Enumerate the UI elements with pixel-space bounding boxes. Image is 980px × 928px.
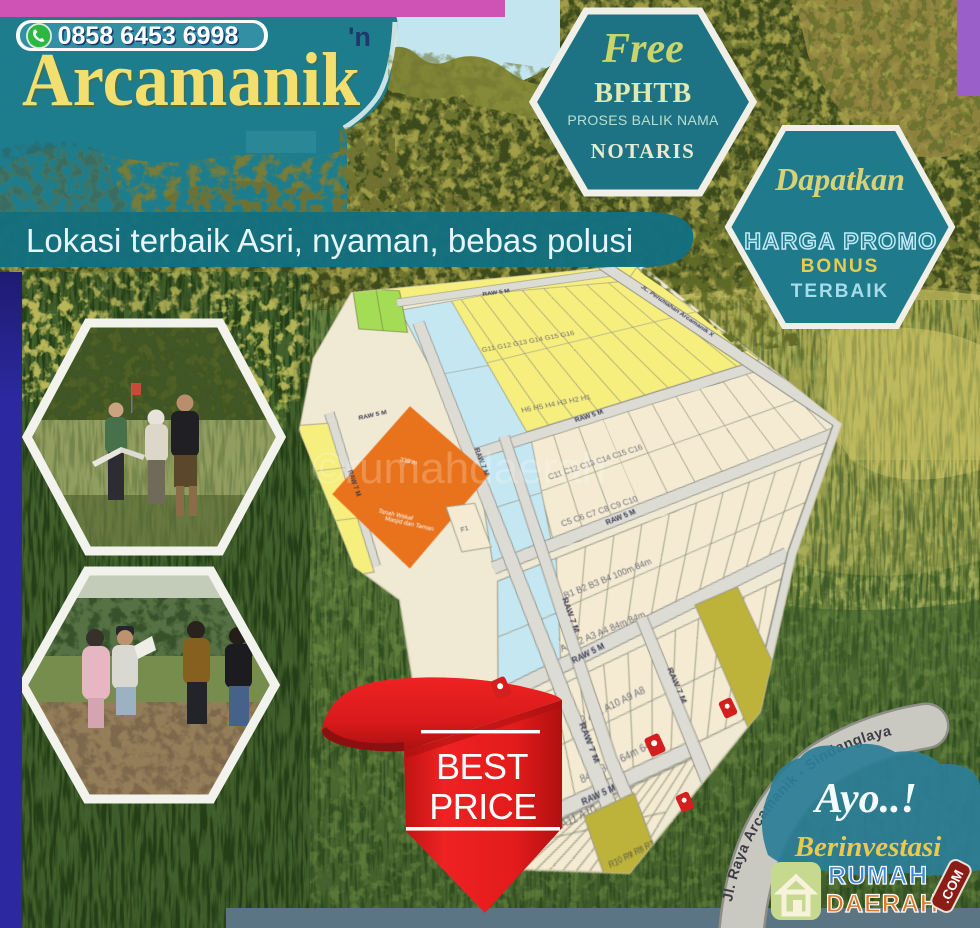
svg-text:BONUS: BONUS xyxy=(801,256,880,277)
svg-text:BPHTB: BPHTB xyxy=(594,78,691,109)
svg-text:Berinvestasi: Berinvestasi xyxy=(794,831,942,863)
svg-text:BEST: BEST xyxy=(436,746,529,787)
svg-text:NOTARIS: NOTARIS xyxy=(591,139,696,163)
svg-text:TERBAIK: TERBAIK xyxy=(791,281,889,302)
svg-text:RUMAH: RUMAH xyxy=(828,862,929,890)
svg-text:PROSES BALIK NAMA: PROSES BALIK NAMA xyxy=(567,112,719,128)
svg-text:©rumahdaerah: ©rumahdaerah xyxy=(312,444,606,493)
svg-text:DAERAH: DAERAH xyxy=(826,890,939,918)
svg-text:HARGA PROMO: HARGA PROMO xyxy=(744,228,937,254)
svg-text:Free: Free xyxy=(601,26,684,72)
svg-text:Arcamanik: Arcamanik xyxy=(22,38,361,122)
svg-text:Lokasi terbaik Asri, nyaman, b: Lokasi terbaik Asri, nyaman, bebas polus… xyxy=(26,222,633,259)
svg-text:Ayo..!: Ayo..! xyxy=(812,776,917,822)
svg-text:Dapatkan: Dapatkan xyxy=(774,161,905,197)
svg-text:PRICE: PRICE xyxy=(429,786,537,827)
